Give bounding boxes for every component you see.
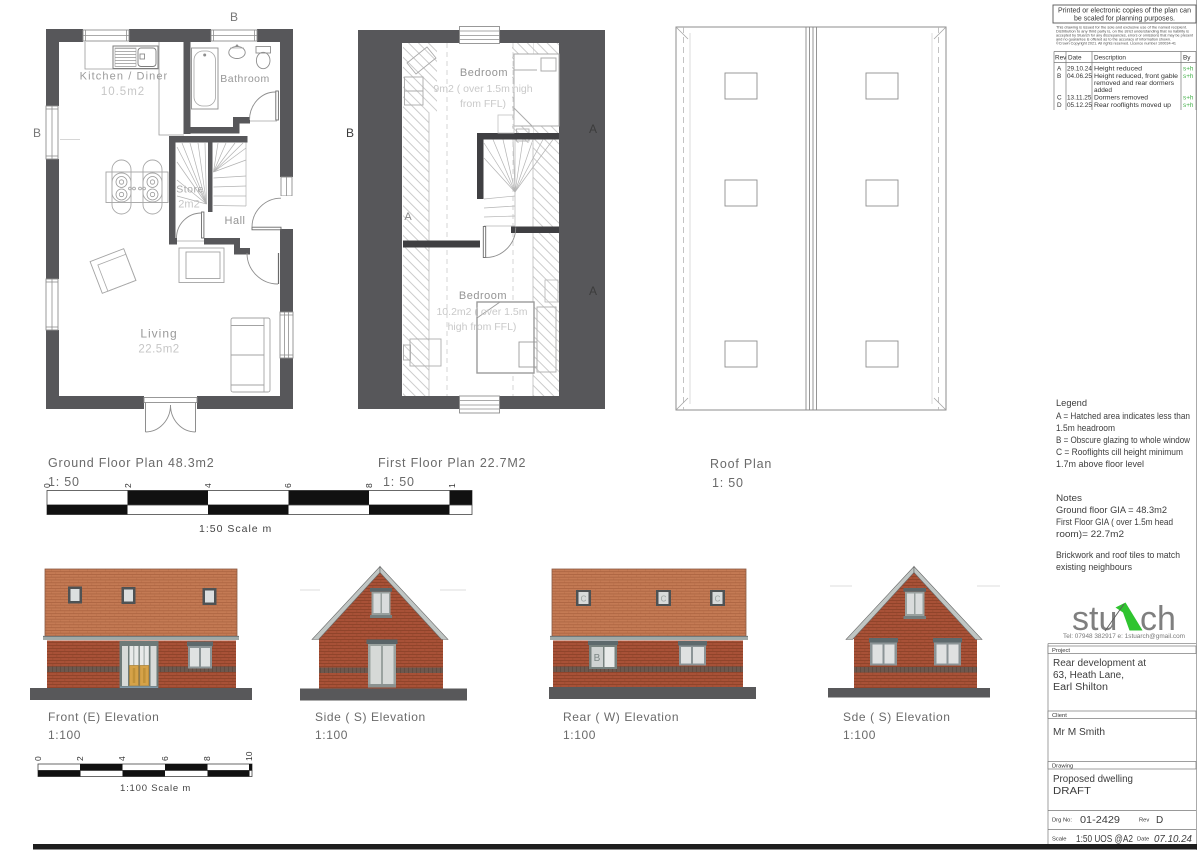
svg-text:0: 0 (33, 756, 43, 761)
svg-text:10.2m2 ( over 1.5m: 10.2m2 ( over 1.5m (436, 306, 527, 318)
svg-text:C: C (661, 595, 667, 604)
svg-text:1.5m headroom: 1.5m headroom (1056, 423, 1115, 434)
svg-text:6: 6 (160, 756, 170, 761)
svg-text:s+h: s+h (1183, 102, 1194, 109)
svg-text:Legend: Legend (1056, 398, 1087, 409)
svg-text:Roof Plan: Roof Plan (710, 457, 772, 471)
svg-text:Proposed dwelling: Proposed dwelling (1053, 774, 1133, 785)
svg-text:Scale: Scale (1052, 837, 1067, 843)
svg-text:A = Hatched area indicates le: A = Hatched area indicates less than (1056, 411, 1190, 422)
svg-text:Front (E) Elevation: Front (E) Elevation (48, 710, 159, 724)
svg-text:Rear rooflights moved up: Rear rooflights moved up (1094, 102, 1171, 109)
svg-text:6: 6 (283, 483, 293, 488)
svg-text:8: 8 (364, 483, 374, 488)
svg-text:D: D (1057, 102, 1062, 109)
svg-text:2: 2 (123, 483, 133, 488)
svg-text:A: A (589, 284, 597, 298)
svg-text:1:100: 1:100 (315, 728, 348, 742)
svg-text:B: B (594, 653, 601, 664)
svg-text:Client: Client (1052, 713, 1067, 719)
svg-text:First Floor Plan 22.7M2: First Floor Plan 22.7M2 (378, 456, 526, 470)
svg-text:1:100 Scale m: 1:100 Scale m (120, 783, 191, 794)
svg-text:05.12.25: 05.12.25 (1067, 102, 1092, 109)
svg-text:A: A (1057, 66, 1062, 73)
svg-text:By: By (1183, 55, 1191, 62)
svg-text:Date: Date (1068, 55, 1082, 62)
svg-text:Notes: Notes (1056, 493, 1082, 504)
svg-text:Ground Floor Plan 48.3m2: Ground Floor Plan 48.3m2 (48, 456, 215, 470)
svg-text:4: 4 (203, 483, 213, 488)
svg-text:Earl Shilton: Earl Shilton (1053, 682, 1108, 693)
svg-text:Rev: Rev (1139, 818, 1149, 824)
svg-text:Rear development at: Rear development at (1053, 658, 1146, 669)
svg-text:Ground floor GIA = 48.3m2: Ground floor GIA = 48.3m2 (1056, 505, 1167, 516)
svg-text:high from FFL): high from FFL) (448, 321, 517, 333)
svg-text:First Floor GIA ( over 1.5m he: First Floor GIA ( over 1.5m head (1056, 517, 1173, 528)
svg-text:added: added (1094, 87, 1112, 94)
svg-text:Brickwork and roof tiles to ma: Brickwork and roof tiles to match (1056, 550, 1180, 561)
svg-text:D: D (1156, 815, 1163, 826)
svg-text:63, Heath Lane,: 63, Heath Lane, (1053, 670, 1124, 681)
svg-text:B = Obscure glazing to whole: B = Obscure glazing to whole window (1056, 435, 1190, 446)
svg-text:existing neighbours: existing neighbours (1056, 562, 1132, 573)
svg-text:from FFL): from FFL) (460, 98, 506, 110)
svg-text:2m2: 2m2 (178, 199, 199, 211)
svg-text:DRAFT: DRAFT (1053, 786, 1091, 797)
svg-text:s+h: s+h (1183, 95, 1194, 102)
svg-text:1:50 UOS @A2: 1:50 UOS @A2 (1076, 834, 1133, 845)
svg-text:Drawing: Drawing (1052, 764, 1073, 770)
svg-text:Date: Date (1137, 837, 1149, 843)
svg-text:s+h: s+h (1183, 66, 1194, 73)
svg-text:Bathroom: Bathroom (220, 73, 270, 85)
svg-text:be scaled for planning purpose: be scaled for planning purposes. (1074, 14, 1175, 23)
svg-text:s+h: s+h (1183, 73, 1194, 80)
svg-text:removed and rear dormers: removed and rear dormers (1094, 80, 1174, 87)
svg-text:room)= 22.7m2: room)= 22.7m2 (1056, 529, 1124, 540)
svg-text:1: 50: 1: 50 (48, 475, 80, 489)
svg-text:Rear ( W) Elevation: Rear ( W) Elevation (563, 710, 679, 724)
svg-text:01-2429: 01-2429 (1080, 815, 1120, 826)
svg-text:Bedroom: Bedroom (459, 290, 507, 302)
svg-text:Side ( S) Elevation: Side ( S) Elevation (315, 710, 426, 724)
svg-text:22.5m2: 22.5m2 (138, 344, 179, 356)
svg-text:1:50 Scale m: 1:50 Scale m (199, 523, 272, 535)
svg-text:A: A (404, 211, 412, 223)
svg-text:2: 2 (75, 756, 85, 761)
svg-text:Store: Store (176, 184, 204, 196)
svg-text:07.10.24: 07.10.24 (1154, 834, 1192, 845)
svg-text:Rev: Rev (1055, 55, 1067, 62)
svg-text:B: B (230, 10, 238, 24)
svg-text:Kitchen / Diner: Kitchen / Diner (80, 71, 169, 83)
svg-text:1:100: 1:100 (843, 728, 876, 742)
svg-text:1:100: 1:100 (48, 728, 81, 742)
svg-text:Drg No:: Drg No: (1052, 818, 1072, 824)
svg-text:1: 1 (447, 483, 457, 488)
svg-text:10: 10 (244, 751, 254, 761)
svg-text:Living: Living (140, 327, 177, 341)
svg-text:B: B (33, 126, 41, 140)
svg-text:04.06.25: 04.06.25 (1067, 73, 1092, 80)
svg-text:Description: Description (1094, 55, 1126, 62)
svg-text:13.11.25: 13.11.25 (1067, 95, 1092, 102)
svg-text:C: C (715, 595, 721, 604)
svg-text:8: 8 (202, 756, 212, 761)
svg-text:1.7m above floor level: 1.7m above floor level (1056, 459, 1144, 470)
svg-text:C: C (1057, 95, 1062, 102)
svg-text:29.10.24: 29.10.24 (1067, 66, 1092, 73)
svg-text:4: 4 (117, 756, 127, 761)
svg-text:0: 0 (42, 483, 52, 488)
svg-text:10.5m2: 10.5m2 (101, 86, 145, 98)
svg-text:Bedroom: Bedroom (460, 67, 508, 79)
svg-text:1: 50: 1: 50 (712, 476, 744, 490)
svg-text:©Crown Copyright 2021. All rig: ©Crown Copyright 2021. All rights reserv… (1056, 42, 1176, 46)
svg-text:Project: Project (1052, 648, 1070, 654)
svg-text:9m2 ( over 1.5m high: 9m2 ( over 1.5m high (433, 83, 532, 95)
svg-text:B: B (1057, 73, 1061, 80)
svg-text:Mr M Smith: Mr M Smith (1053, 727, 1105, 738)
svg-text:Tel: 07948 382917 e: 1stuarch: Tel: 07948 382917 e: 1stuarch@gmail.com (1063, 633, 1185, 640)
svg-text:Height reduced, front gable: Height reduced, front gable (1094, 73, 1178, 80)
svg-text:Hall: Hall (225, 215, 246, 227)
svg-text:Sde ( S) Elevation: Sde ( S) Elevation (843, 710, 951, 724)
svg-text:C = Rooflights cill height mi: C = Rooflights cill height minimum (1056, 447, 1183, 458)
svg-text:1: 50: 1: 50 (383, 475, 415, 489)
svg-text:Height reduced: Height reduced (1094, 66, 1142, 73)
svg-text:1:100: 1:100 (563, 728, 596, 742)
svg-text:C: C (581, 595, 587, 604)
svg-text:Dormers removed: Dormers removed (1094, 95, 1148, 102)
svg-text:A: A (589, 122, 597, 136)
svg-text:B: B (346, 126, 354, 140)
